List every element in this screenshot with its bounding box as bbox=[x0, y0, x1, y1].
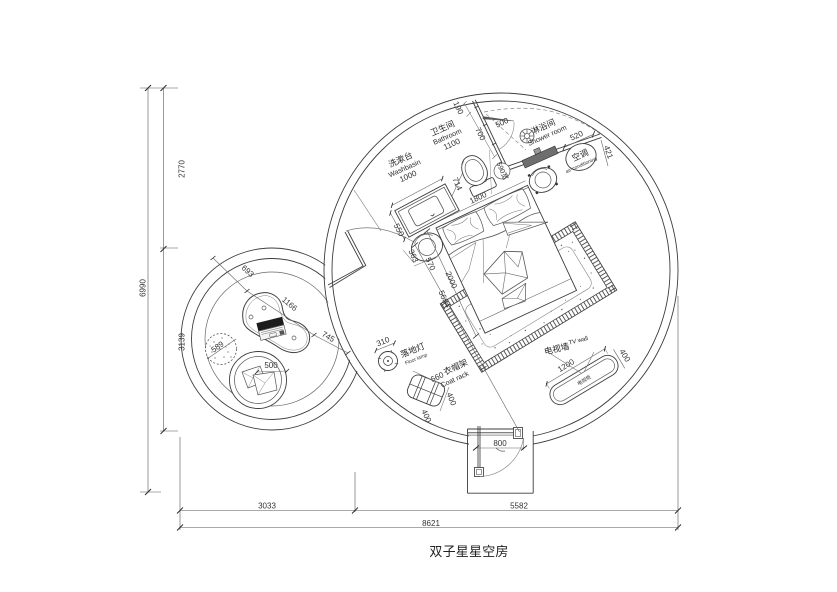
svg-text:6990: 6990 bbox=[139, 279, 148, 297]
svg-text:5582: 5582 bbox=[510, 502, 528, 511]
svg-text:2770: 2770 bbox=[178, 160, 187, 178]
svg-text:双子星星空房: 双子星星空房 bbox=[429, 544, 508, 559]
svg-text:500: 500 bbox=[264, 361, 278, 370]
svg-text:800: 800 bbox=[493, 439, 507, 448]
svg-text:8621: 8621 bbox=[422, 519, 440, 528]
svg-text:3033: 3033 bbox=[258, 502, 276, 511]
svg-text:3139: 3139 bbox=[178, 333, 187, 351]
